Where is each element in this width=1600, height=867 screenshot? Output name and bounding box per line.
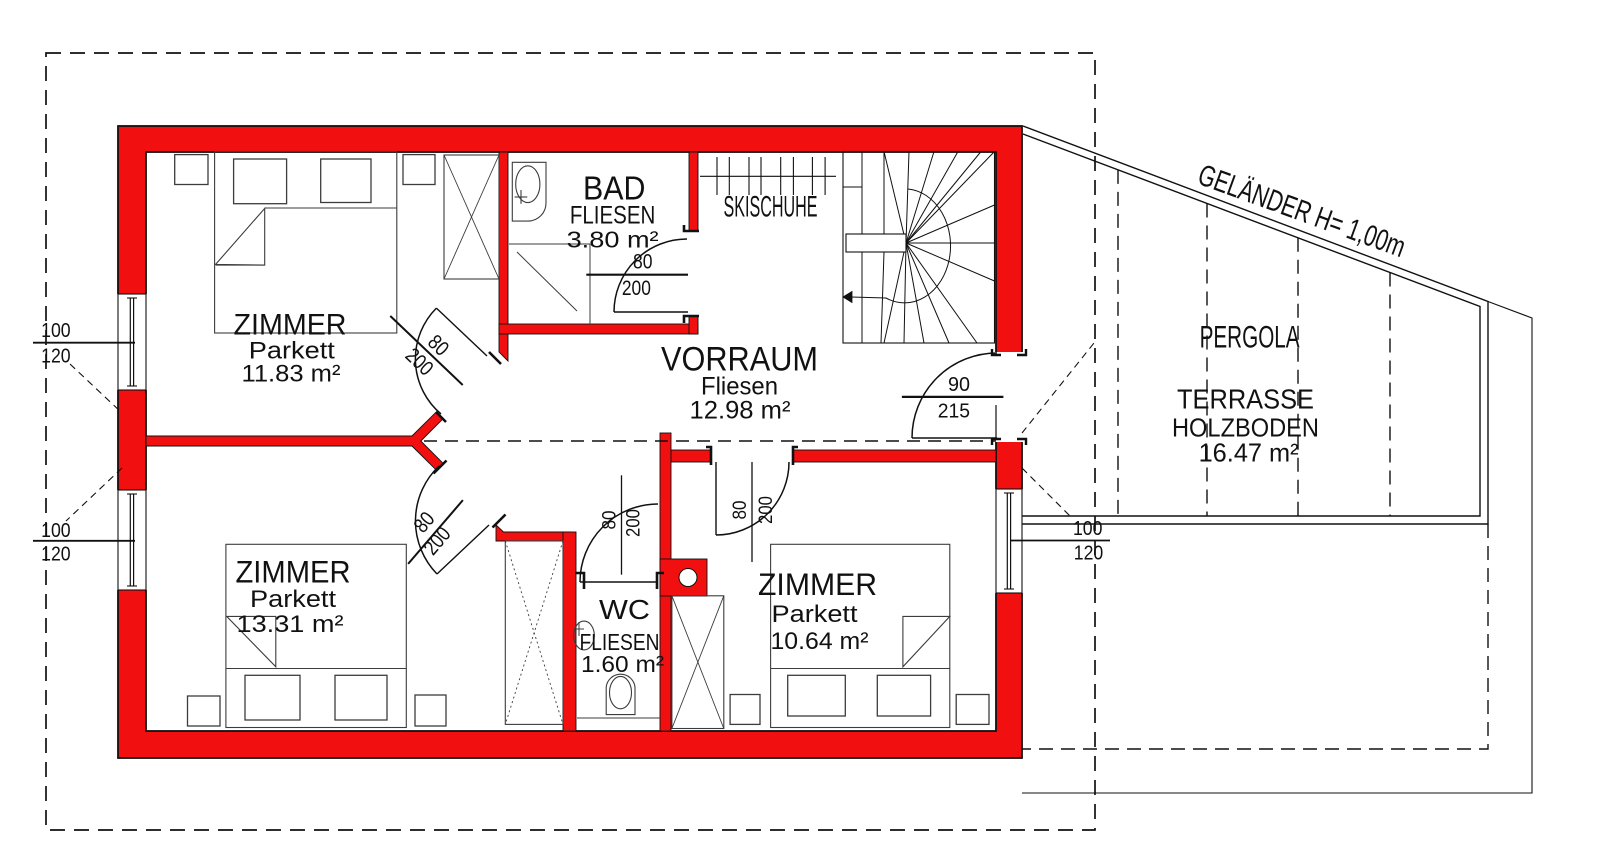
svg-text:100: 100 [41,520,71,542]
svg-text:PERGOLA: PERGOLA [1200,319,1300,355]
svg-text:3.80 m²: 3.80 m² [567,227,659,253]
svg-text:SKISCHUHE: SKISCHUHE [724,190,818,223]
svg-text:BAD: BAD [583,170,646,207]
svg-text:ZIMMER: ZIMMER [236,554,351,590]
svg-text:TERRASSE: TERRASSE [1177,384,1314,415]
svg-text:90: 90 [948,373,970,396]
svg-text:80: 80 [633,251,653,274]
svg-text:13.31 m²: 13.31 m² [237,611,344,638]
svg-text:120: 120 [1074,543,1104,565]
svg-text:ZIMMER: ZIMMER [758,566,877,602]
svg-text:Parkett: Parkett [250,586,336,613]
svg-text:11.83 m²: 11.83 m² [242,361,341,388]
svg-text:FLIESEN: FLIESEN [570,203,656,230]
svg-text:16.47 m²: 16.47 m² [1199,440,1299,468]
svg-text:215: 215 [938,400,970,423]
svg-text:120: 120 [41,543,71,565]
svg-text:200: 200 [624,509,645,537]
svg-text:10.64 m²: 10.64 m² [771,628,869,655]
svg-text:WC: WC [599,594,650,625]
svg-text:12.98 m²: 12.98 m² [690,398,791,425]
svg-text:80: 80 [730,501,751,520]
svg-text:Parkett: Parkett [772,601,858,628]
svg-text:200: 200 [756,496,777,524]
svg-text:HOLZBODEN: HOLZBODEN [1172,415,1319,443]
svg-text:200: 200 [622,277,651,300]
svg-text:100: 100 [41,320,71,342]
svg-text:1.60 m²: 1.60 m² [581,651,664,677]
svg-text:120: 120 [41,345,71,367]
svg-text:100: 100 [1073,518,1103,540]
svg-text:80: 80 [600,511,621,530]
